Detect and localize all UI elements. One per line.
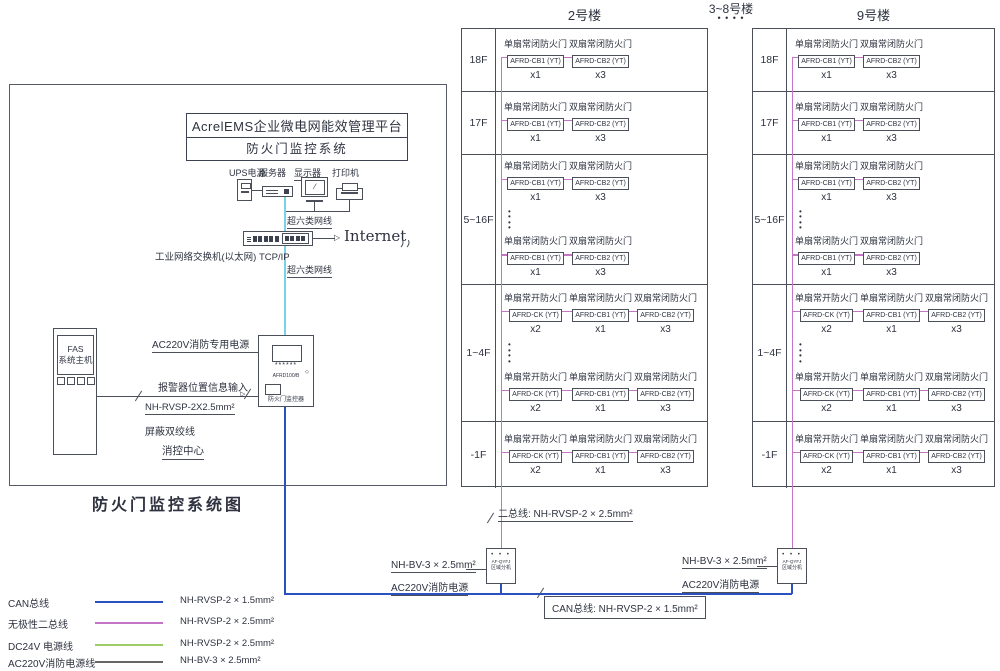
door-count: x1 — [568, 465, 633, 476]
door-module-box: AFRD-CB1 (YT) — [572, 450, 629, 463]
door-item: 双扇常闭防火门AFRD-CB2 (YT)x3 — [568, 236, 633, 278]
door-type-label: 单扇常闭防火门 — [859, 293, 924, 304]
door-module-box: AFRD-CK (YT) — [800, 309, 853, 322]
floor-content: 单扇常开防火门AFRD-CK (YT)x2单扇常闭防火门AFRD-CB1 (YT… — [496, 285, 707, 421]
door-group: 单扇常闭防火门AFRD-CB1 (YT)x1双扇常闭防火门AFRD-CB2 (Y… — [503, 161, 633, 203]
legend-line-ac220v — [95, 661, 163, 663]
door-module-box: AFRD-CB1 (YT) — [798, 177, 855, 190]
door-item: 双扇常闭防火门AFRD-CB2 (YT)x3 — [633, 372, 698, 414]
door-module-box: AFRD-CB2 (YT) — [572, 177, 629, 190]
legend-spec-can: NH-RVSP-2 × 1.5mm² — [180, 595, 274, 606]
printer-slot — [341, 192, 358, 194]
door-type-label: 单扇常闭防火门 — [503, 161, 568, 172]
door-count: x1 — [568, 403, 633, 414]
door-module-box: AFRD-CK (YT) — [800, 388, 853, 401]
signal-squiggle-icon — [399, 237, 415, 249]
door-item: 单扇常闭防火门AFRD-CB1 (YT)x1 — [568, 434, 633, 476]
door-item: 单扇常闭防火门AFRD-CB1 (YT)x1 — [503, 102, 568, 144]
floor-row: 17F单扇常闭防火门AFRD-CB1 (YT)x1双扇常闭防火门AFRD-CB2… — [462, 91, 707, 154]
controller-name: 防火门监控器 — [259, 394, 313, 403]
switch-port-icon — [296, 236, 300, 241]
fas-ports-row — [57, 377, 95, 385]
door-type-label: 双扇常闭防火门 — [633, 372, 698, 383]
control-center-label: 消控中心 — [162, 443, 204, 460]
extension1-power-wire — [466, 569, 486, 570]
switch-led-icon — [264, 236, 268, 242]
printer-drop-wire — [349, 200, 350, 211]
door-count: x1 — [794, 133, 859, 144]
door-count: x1 — [859, 403, 924, 414]
door-module-box: AFRD-CB2 (YT) — [863, 118, 920, 131]
door-module-box: AFRD-CB2 (YT) — [572, 55, 629, 68]
door-type-label: 单扇常开防火门 — [794, 372, 859, 383]
door-count: x1 — [568, 324, 633, 335]
door-count: x2 — [794, 465, 859, 476]
switch-led-icon — [275, 236, 279, 242]
floor-row: 5~16F单扇常闭防火门AFRD-CB1 (YT)x1双扇常闭防火门AFRD-C… — [462, 154, 707, 284]
switch-led-icon — [269, 236, 273, 242]
industrial-switch-icon — [243, 231, 313, 246]
building-table-2: 18F单扇常闭防火门AFRD-CB1 (YT)x1双扇常闭防火门AFRD-CB2… — [752, 28, 995, 487]
door-group: 单扇常开防火门AFRD-CK (YT)x2单扇常闭防火门AFRD-CB1 (YT… — [794, 372, 989, 414]
door-item: 单扇常闭防火门AFRD-CB1 (YT)x1 — [503, 236, 568, 278]
door-count: x1 — [503, 133, 568, 144]
door-type-label: 双扇常闭防火门 — [633, 434, 698, 445]
extension-leds: • • • — [487, 551, 515, 559]
door-item: 单扇常闭防火门AFRD-CB1 (YT)x1 — [568, 293, 633, 335]
door-type-label: 单扇常闭防火门 — [859, 372, 924, 383]
door-item: 双扇常闭防火门AFRD-CB2 (YT)x3 — [924, 372, 989, 414]
door-item: 双扇常闭防火门AFRD-CB2 (YT)x3 — [568, 161, 633, 203]
door-group: 单扇常开防火门AFRD-CK (YT)x2单扇常闭防火门AFRD-CB1 (YT… — [503, 372, 698, 414]
ellipsis-dots: • • • • — [799, 209, 802, 231]
switch-port-icon — [301, 236, 305, 241]
extension-name: 区域分机 — [778, 565, 806, 572]
legend-label-twobus: 无极性二总线 — [8, 616, 68, 631]
door-type-label: 双扇常闭防火门 — [924, 434, 989, 445]
door-count: x3 — [568, 70, 633, 81]
door-count: x1 — [794, 192, 859, 203]
fas-port-icon — [67, 377, 75, 385]
fas-name-line1: FAS — [67, 344, 83, 355]
internet-arrowhead-icon: ▷ — [334, 233, 340, 242]
ups-vent — [241, 183, 251, 189]
door-type-label: 双扇常闭防火门 — [568, 39, 633, 50]
door-count: x3 — [859, 70, 924, 81]
floor-row: 18F单扇常闭防火门AFRD-CB1 (YT)x1双扇常闭防火门AFRD-CB2… — [462, 29, 707, 91]
door-count: x1 — [794, 267, 859, 278]
door-module-box: AFRD-CB2 (YT) — [928, 388, 985, 401]
door-type-label: 单扇常闭防火门 — [568, 293, 633, 304]
floor-label: 17F — [753, 92, 787, 154]
door-item: 双扇常闭防火门AFRD-CB2 (YT)x3 — [568, 102, 633, 144]
door-type-label: 双扇常闭防火门 — [859, 161, 924, 172]
door-module-box: AFRD-CB2 (YT) — [572, 118, 629, 131]
floor-label: -1F — [462, 422, 496, 488]
door-type-label: 单扇常闭防火门 — [568, 372, 633, 383]
fas-port-icon — [77, 377, 85, 385]
peripheral-bus-wire — [284, 211, 350, 212]
door-count: x1 — [503, 267, 568, 278]
extension2-power-spec: NH-BV-3 × 2.5mm² — [682, 556, 767, 569]
door-item: 双扇常闭防火门AFRD-CB2 (YT)x3 — [859, 39, 924, 81]
extension1-power-name: AC220V消防电源 — [391, 579, 468, 596]
door-group: 单扇常开防火门AFRD-CK (YT)x2单扇常闭防火门AFRD-CB1 (YT… — [794, 434, 989, 476]
door-module-box: AFRD-CK (YT) — [509, 450, 562, 463]
door-type-label: 单扇常闭防火门 — [794, 102, 859, 113]
door-group: 单扇常闭防火门AFRD-CB1 (YT)x1双扇常闭防火门AFRD-CB2 (Y… — [503, 39, 633, 81]
fire-door-monitoring-diagram: 2号楼 3~8号楼 • • • • 9号楼 18F单扇常闭防火门AFRD-CB1… — [0, 0, 1000, 671]
door-count: x2 — [794, 324, 859, 335]
door-type-label: 单扇常开防火门 — [503, 293, 568, 304]
door-item: 单扇常闭防火门AFRD-CB1 (YT)x1 — [503, 161, 568, 203]
door-module-box: AFRD-CB2 (YT) — [637, 450, 694, 463]
floor-label: 18F — [462, 29, 496, 91]
door-type-label: 单扇常开防火门 — [503, 372, 568, 383]
two-bus-label: 二总线: NH-RVSP-2 × 2.5mm² — [498, 505, 633, 522]
door-group: 单扇常闭防火门AFRD-CB1 (YT)x1双扇常闭防火门AFRD-CB2 (Y… — [503, 102, 633, 144]
door-item: 单扇常闭防火门AFRD-CB1 (YT)x1 — [794, 102, 859, 144]
door-type-label: 单扇常闭防火门 — [859, 434, 924, 445]
door-group: 单扇常闭防火门AFRD-CB1 (YT)x1双扇常闭防火门AFRD-CB2 (Y… — [794, 39, 924, 81]
extension-name: 区域分机 — [487, 565, 515, 572]
door-count: x2 — [503, 465, 568, 476]
door-type-label: 双扇常闭防火门 — [568, 102, 633, 113]
fas-port-icon — [57, 377, 65, 385]
ellipsis-dots: • • • • — [508, 342, 511, 364]
regional-extension-unit-1: • • • AF-QYFJ 区域分机 — [486, 548, 516, 584]
can-bus-label: CAN总线: NH-RVSP-2 × 1.5mm² — [552, 604, 698, 615]
door-count: x3 — [859, 267, 924, 278]
door-type-label: 双扇常闭防火门 — [924, 293, 989, 304]
floor-content: 单扇常闭防火门AFRD-CB1 (YT)x1双扇常闭防火门AFRD-CB2 (Y… — [496, 92, 707, 154]
door-type-label: 单扇常开防火门 — [503, 434, 568, 445]
floor-label: 17F — [462, 92, 496, 154]
door-count: x3 — [924, 465, 989, 476]
door-module-box: AFRD-CB1 (YT) — [798, 118, 855, 131]
floor-row: 5~16F单扇常闭防火门AFRD-CB1 (YT)x1双扇常闭防火门AFRD-C… — [753, 154, 994, 284]
door-module-box: AFRD-CB2 (YT) — [928, 450, 985, 463]
door-type-label: 双扇常闭防火门 — [924, 372, 989, 383]
floor-content: 单扇常开防火门AFRD-CK (YT)x2单扇常闭防火门AFRD-CB1 (YT… — [496, 422, 707, 488]
door-count: x2 — [503, 403, 568, 414]
legend-label-ac220v: AC220V消防电源线 — [8, 655, 95, 670]
door-count: x3 — [859, 133, 924, 144]
ellipsis-dots: • • • • — [508, 209, 511, 231]
extension-leds: • • • — [778, 551, 806, 559]
door-item: 双扇常闭防火门AFRD-CB2 (YT)x3 — [859, 236, 924, 278]
door-type-label: 单扇常闭防火门 — [794, 236, 859, 247]
door-module-box: AFRD-CB2 (YT) — [928, 309, 985, 322]
monitor-icon: ∕ — [301, 177, 328, 197]
door-count: x3 — [924, 324, 989, 335]
server-vent2 — [266, 193, 278, 194]
door-module-box: AFRD-CB1 (YT) — [798, 252, 855, 265]
floor-content: 单扇常闭防火门AFRD-CB1 (YT)x1双扇常闭防火门AFRD-CB2 (Y… — [496, 155, 707, 284]
platform-title: AcrelEMS企业微电网能效管理平台 — [192, 119, 402, 134]
dedicated-power-wire — [152, 352, 258, 353]
door-item: 单扇常闭防火门AFRD-CB1 (YT)x1 — [568, 372, 633, 414]
door-module-box: AFRD-CB1 (YT) — [507, 55, 564, 68]
fas-name-line2: 系统主机 — [58, 355, 92, 366]
floor-label: 18F — [753, 29, 787, 91]
floor-label: 1~4F — [462, 285, 496, 421]
door-item: 单扇常闭防火门AFRD-CB1 (YT)x1 — [503, 39, 568, 81]
legend-label-dc24v: DC24V 电源线 — [8, 638, 73, 653]
door-module-box: AFRD-CK (YT) — [509, 309, 562, 322]
door-module-box: AFRD-CB1 (YT) — [507, 177, 564, 190]
platform-title-box: AcrelEMS企业微电网能效管理平台 — [186, 113, 408, 138]
door-count: x3 — [633, 465, 698, 476]
floor-content: 单扇常闭防火门AFRD-CB1 (YT)x1双扇常闭防火门AFRD-CB2 (Y… — [787, 92, 994, 154]
cat6-cable-top-label: 超六类网线 — [287, 214, 332, 229]
door-group: 单扇常开防火门AFRD-CK (YT)x2单扇常闭防火门AFRD-CB1 (YT… — [794, 293, 989, 335]
printer-icon — [336, 188, 363, 200]
two-bus-riser — [501, 57, 502, 548]
door-item: 单扇常闭防火门AFRD-CB1 (YT)x1 — [794, 161, 859, 203]
diagram-caption: 防火门监控系统图 — [92, 491, 244, 515]
switch-led-icon — [247, 236, 251, 242]
door-type-label: 单扇常闭防火门 — [794, 161, 859, 172]
door-type-label: 单扇常闭防火门 — [503, 102, 568, 113]
door-module-box: AFRD-CB1 (YT) — [863, 450, 920, 463]
door-count: x1 — [859, 324, 924, 335]
extension2-can-stub — [791, 584, 793, 594]
door-count: x3 — [633, 324, 698, 335]
door-type-label: 双扇常闭防火门 — [568, 161, 633, 172]
server-label: 服务器 — [259, 166, 286, 179]
door-module-box: AFRD-CK (YT) — [509, 388, 562, 401]
switch-led-icon — [253, 236, 257, 242]
door-item: 双扇常闭防火门AFRD-CB2 (YT)x3 — [859, 161, 924, 203]
door-item: 单扇常开防火门AFRD-CK (YT)x2 — [794, 293, 859, 335]
door-item: 单扇常闭防火门AFRD-CB1 (YT)x1 — [859, 434, 924, 476]
two-bus-riser — [792, 57, 793, 548]
system-title-box: 防火门监控系统 — [186, 138, 408, 161]
switch-port-icon — [285, 236, 289, 241]
legend-spec-twobus: NH-RVSP-2 × 2.5mm² — [180, 616, 274, 627]
door-item: 双扇常闭防火门AFRD-CB2 (YT)x3 — [633, 434, 698, 476]
door-type-label: 单扇常闭防火门 — [503, 39, 568, 50]
door-type-label: 双扇常闭防火门 — [859, 102, 924, 113]
door-type-label: 单扇常闭防火门 — [503, 236, 568, 247]
door-module-box: AFRD-CB1 (YT) — [507, 252, 564, 265]
door-group: 单扇常闭防火门AFRD-CB1 (YT)x1双扇常闭防火门AFRD-CB2 (Y… — [794, 236, 924, 278]
floor-row: -1F单扇常开防火门AFRD-CK (YT)x2单扇常闭防火门AFRD-CB1 … — [462, 421, 707, 488]
door-count: x2 — [794, 403, 859, 414]
door-item: 双扇常闭防火门AFRD-CB2 (YT)x3 — [924, 293, 989, 335]
internet-label: Internet — [344, 227, 406, 245]
door-item: 单扇常开防火门AFRD-CK (YT)x2 — [794, 372, 859, 414]
door-group: 单扇常闭防火门AFRD-CB1 (YT)x1双扇常闭防火门AFRD-CB2 (Y… — [794, 102, 924, 144]
floor-row: -1F单扇常开防火门AFRD-CK (YT)x2单扇常闭防火门AFRD-CB1 … — [753, 421, 994, 488]
door-module-box: AFRD-CB2 (YT) — [863, 177, 920, 190]
door-count: x2 — [503, 324, 568, 335]
floor-label: -1F — [753, 422, 787, 488]
server-icon — [262, 186, 293, 197]
floor-row: 17F单扇常闭防火门AFRD-CB1 (YT)x1双扇常闭防火门AFRD-CB2… — [753, 91, 994, 154]
controller-leds: ****** — [259, 362, 313, 369]
door-item: 单扇常开防火门AFRD-CK (YT)x2 — [503, 434, 568, 476]
floor-content: 单扇常闭防火门AFRD-CB1 (YT)x1双扇常闭防火门AFRD-CB2 (Y… — [787, 29, 994, 91]
door-group: 单扇常闭防火门AFRD-CB1 (YT)x1双扇常闭防火门AFRD-CB2 (Y… — [794, 161, 924, 203]
legend-line-dc24v — [95, 644, 163, 646]
alarm-input-label: 报警器位置信息输入 — [158, 379, 248, 394]
door-module-box: AFRD-CB1 (YT) — [798, 55, 855, 68]
door-type-label: 双扇常闭防火门 — [568, 236, 633, 247]
floor-content: 单扇常闭防火门AFRD-CB1 (YT)x1双扇常闭防火门AFRD-CB2 (Y… — [496, 29, 707, 91]
door-module-box: AFRD-CB2 (YT) — [637, 388, 694, 401]
door-item: 单扇常闭防火门AFRD-CB1 (YT)x1 — [859, 372, 924, 414]
shielded-wire-name: 屏蔽双绞线 — [145, 423, 195, 438]
floor-content: 单扇常开防火门AFRD-CK (YT)x2单扇常闭防火门AFRD-CB1 (YT… — [787, 422, 994, 488]
legend-spec-dc24v: NH-RVSP-2 × 2.5mm² — [180, 638, 274, 649]
door-item: 单扇常开防火门AFRD-CK (YT)x2 — [794, 434, 859, 476]
door-group: 单扇常闭防火门AFRD-CB1 (YT)x1双扇常闭防火门AFRD-CB2 (Y… — [503, 236, 633, 278]
door-item: 单扇常闭防火门AFRD-CB1 (YT)x1 — [859, 293, 924, 335]
printer-top — [342, 183, 358, 191]
internet-wire — [313, 238, 335, 239]
door-count: x3 — [924, 403, 989, 414]
legend-line-twobus — [95, 622, 163, 624]
extension1-power-spec: NH-BV-3 × 2.5mm² — [391, 560, 476, 573]
fas-name-box: FAS 系统主机 — [57, 335, 94, 375]
door-item: 单扇常闭防火门AFRD-CB1 (YT)x1 — [794, 39, 859, 81]
door-count: x1 — [503, 192, 568, 203]
door-count: x1 — [794, 70, 859, 81]
door-module-box: AFRD-CB2 (YT) — [637, 309, 694, 322]
ellipsis-dots: • • • • — [799, 342, 802, 364]
legend-line-can — [95, 601, 163, 603]
dedicated-power-label: AC220V消防专用电源 — [152, 336, 249, 351]
door-type-label: 双扇常闭防火门 — [859, 236, 924, 247]
extension1-can-stub — [500, 584, 502, 594]
door-item: 双扇常闭防火门AFRD-CB2 (YT)x3 — [568, 39, 633, 81]
ups-led — [241, 191, 249, 193]
building-table-1: 18F单扇常闭防火门AFRD-CB1 (YT)x1双扇常闭防火门AFRD-CB2… — [461, 28, 708, 487]
regional-extension-unit-2: • • • AF-QYFJ 区域分机 — [777, 548, 807, 584]
door-item: 单扇常开防火门AFRD-CK (YT)x2 — [503, 372, 568, 414]
door-count: x3 — [568, 133, 633, 144]
floor-label: 5~16F — [462, 155, 496, 284]
floor-row: 18F单扇常闭防火门AFRD-CB1 (YT)x1双扇常闭防火门AFRD-CB2… — [753, 29, 994, 91]
floor-label: 1~4F — [753, 285, 787, 421]
door-type-label: 单扇常开防火门 — [794, 293, 859, 304]
controller-screen — [272, 345, 302, 362]
cat6-cable-bottom-label: 超六类网线 — [287, 263, 332, 278]
door-item: 单扇常闭防火门AFRD-CB1 (YT)x1 — [794, 236, 859, 278]
floor-row: 1~4F单扇常开防火门AFRD-CK (YT)x2单扇常闭防火门AFRD-CB1… — [462, 284, 707, 421]
switch-label: 工业网络交换机(以太网) TCP/IP — [155, 249, 290, 263]
floor-content: 单扇常开防火门AFRD-CK (YT)x2单扇常闭防火门AFRD-CB1 (YT… — [787, 285, 994, 421]
door-item: 单扇常开防火门AFRD-CK (YT)x2 — [503, 293, 568, 335]
door-item: 双扇常闭防火门AFRD-CB2 (YT)x3 — [859, 102, 924, 144]
door-module-box: AFRD-CB1 (YT) — [572, 388, 629, 401]
door-module-box: AFRD-CK (YT) — [800, 450, 853, 463]
controller-indicator-icon: ◇ — [305, 369, 309, 375]
monitor-screen: ∕ — [305, 180, 325, 195]
door-type-label: 双扇常闭防火门 — [633, 293, 698, 304]
door-count: x3 — [633, 403, 698, 414]
door-module-box: AFRD-CB2 (YT) — [572, 252, 629, 265]
server-vent — [266, 190, 278, 191]
door-count: x1 — [503, 70, 568, 81]
fas-host-box: FAS 系统主机 — [53, 328, 97, 455]
door-item: 双扇常闭防火门AFRD-CB2 (YT)x3 — [924, 434, 989, 476]
switch-led-icon — [258, 236, 262, 242]
door-module-box: AFRD-CB1 (YT) — [863, 388, 920, 401]
legend-label-can: CAN总线 — [8, 595, 49, 610]
system-title: 防火门监控系统 — [246, 142, 348, 156]
floor-label: 5~16F — [753, 155, 787, 284]
door-module-box: AFRD-CB1 (YT) — [572, 309, 629, 322]
door-type-label: 双扇常闭防火门 — [859, 39, 924, 50]
fas-port-icon — [87, 377, 95, 385]
floor-row: 1~4F单扇常开防火门AFRD-CK (YT)x2单扇常闭防火门AFRD-CB1… — [753, 284, 994, 421]
monitor-drop-wire — [314, 202, 315, 211]
legend-spec-ac220v: NH-BV-3 × 2.5mm² — [180, 655, 261, 666]
door-count: x3 — [568, 267, 633, 278]
can-bus-label-box: CAN总线: NH-RVSP-2 × 1.5mm² — [544, 596, 706, 619]
switch-port-icon — [290, 236, 294, 241]
door-group: 单扇常开防火门AFRD-CK (YT)x2单扇常闭防火门AFRD-CB1 (YT… — [503, 434, 698, 476]
fire-door-controller-box: ****** AFRD100/B ◇ 防火门监控器 — [258, 335, 314, 407]
door-count: x1 — [859, 465, 924, 476]
extension2-power-wire — [757, 566, 777, 567]
floor-content: 单扇常闭防火门AFRD-CB1 (YT)x1双扇常闭防火门AFRD-CB2 (Y… — [787, 155, 994, 284]
printer-label: 打印机 — [332, 166, 359, 179]
server-drive — [284, 189, 289, 194]
door-module-box: AFRD-CB1 (YT) — [863, 309, 920, 322]
door-group: 单扇常开防火门AFRD-CK (YT)x2单扇常闭防火门AFRD-CB1 (YT… — [503, 293, 698, 335]
shielded-wire-spec: NH-RVSP-2X2.5mm² — [145, 402, 235, 415]
ups-tower-icon — [237, 179, 252, 201]
alarm-input-wire — [97, 396, 258, 397]
door-type-label: 单扇常开防火门 — [794, 434, 859, 445]
switch-port-block — [282, 233, 309, 244]
door-type-label: 单扇常闭防火门 — [794, 39, 859, 50]
door-module-box: AFRD-CB2 (YT) — [863, 252, 920, 265]
network-cable-vertical — [284, 197, 286, 335]
door-module-box: AFRD-CB2 (YT) — [863, 55, 920, 68]
door-item: 双扇常闭防火门AFRD-CB2 (YT)x3 — [633, 293, 698, 335]
extension2-power-name: AC220V消防电源 — [682, 576, 759, 593]
door-count: x3 — [568, 192, 633, 203]
can-bus-vertical — [284, 407, 286, 594]
door-module-box: AFRD-CB1 (YT) — [507, 118, 564, 131]
door-type-label: 单扇常闭防火门 — [568, 434, 633, 445]
door-count: x3 — [859, 192, 924, 203]
